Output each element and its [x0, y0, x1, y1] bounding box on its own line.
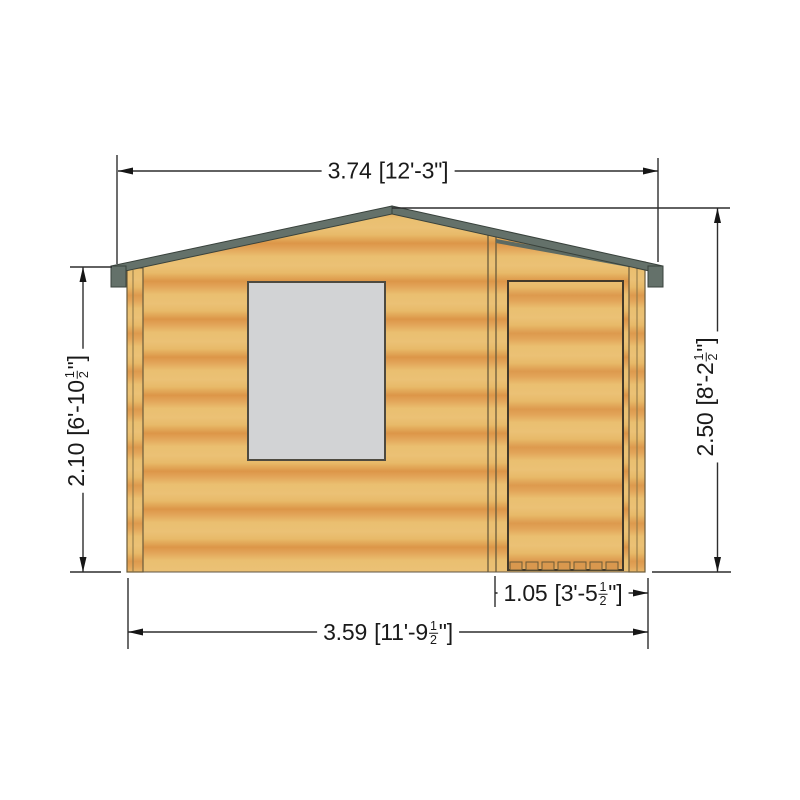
arrow-right	[643, 168, 658, 175]
imperial-value: [8'-2	[692, 362, 717, 405]
fraction: 12	[429, 620, 438, 647]
ridge-height-dimension-label: 2.50 [8'-2 12 "]	[691, 332, 720, 463]
window	[248, 282, 385, 460]
door-plank-end	[542, 562, 554, 570]
imperial-value: [6'-10	[63, 380, 88, 436]
metric-value: 3.74	[328, 158, 372, 183]
metric-value: 2.50	[692, 412, 717, 456]
roof-eave-tab-right	[648, 266, 663, 287]
imperial-suffix: "]	[692, 338, 717, 352]
door	[508, 281, 623, 570]
arrow-left	[118, 168, 133, 175]
door-plank-end	[526, 562, 538, 570]
arrow-right	[633, 590, 648, 597]
roof-eave-tab-left	[111, 266, 126, 287]
metric-value: 2.10	[63, 443, 88, 487]
imperial-value: [12'-3"]	[379, 158, 449, 183]
arrow-left	[128, 629, 143, 636]
imperial-suffix: "]	[63, 355, 88, 369]
fraction: 12	[693, 353, 720, 362]
arrow-right	[633, 629, 648, 636]
fraction: 12	[64, 370, 91, 379]
door-plank-end	[558, 562, 570, 570]
wall-height-dimension-label: 2.10 [6'-10 12 "]	[62, 349, 91, 493]
imperial-suffix: "]	[608, 580, 622, 605]
imperial-value: [11'-9	[374, 619, 428, 644]
arrow-down	[714, 557, 721, 572]
door-width-dimension-label: 1.05 [3'-5 12 "]	[498, 579, 629, 608]
arrow-up	[714, 208, 721, 223]
roof-width-dimension-label: 3.74 [12'-3"]	[322, 157, 455, 184]
arrow-up	[80, 267, 87, 282]
arrow-down	[80, 557, 87, 572]
metric-value: 1.05	[504, 580, 548, 605]
fraction: 12	[599, 581, 608, 608]
door-plank-end	[606, 562, 618, 570]
imperial-value: [3'-5	[555, 580, 598, 605]
metric-value: 3.59	[323, 619, 367, 644]
shed-elevation-diagram: 3.74 [12'-3"] 2.10 [6'-10 12 "] 2.50 [8'…	[0, 0, 800, 800]
door-threshold-planks	[510, 562, 618, 570]
door-plank-end	[510, 562, 522, 570]
shed-elevation-drawing	[0, 0, 800, 800]
imperial-suffix: "]	[439, 619, 453, 644]
base-width-dimension-label: 3.59 [11'-9 12 "]	[317, 618, 459, 647]
door-plank-end	[590, 562, 602, 570]
left-corner-board	[127, 268, 143, 572]
door-plank-end	[574, 562, 586, 570]
